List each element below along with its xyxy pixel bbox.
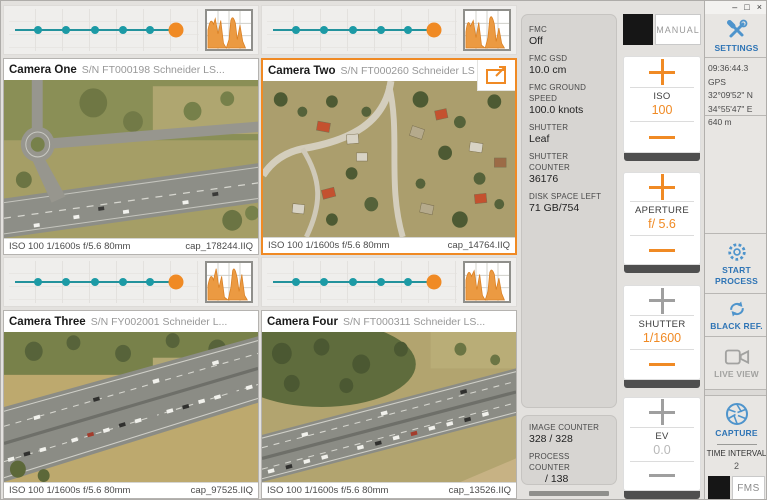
- gps-latitude: 32°09'52" N: [708, 89, 765, 103]
- black-ref-icon: [727, 299, 747, 319]
- camera-four-histogram-thumbnail[interactable]: [463, 261, 511, 303]
- slider-dot: [349, 26, 357, 34]
- camera-two-exposure-slider[interactable]: [267, 9, 457, 51]
- shutter-decrease-button[interactable]: [624, 350, 700, 379]
- slider-dot: [292, 278, 300, 286]
- camera-three-exposure-slider-panel: [3, 257, 259, 307]
- minus-icon: [649, 471, 675, 481]
- capture-button[interactable]: CAPTURE: [705, 396, 767, 444]
- aperture-control-card: APERTURE f/ 5.6: [623, 172, 701, 265]
- close-button[interactable]: ×: [757, 3, 762, 12]
- camera-four-status-bar: ISO 100 1/1600s f/5.6 80mm cap_13526.IIQ: [262, 482, 516, 498]
- camera-three-histogram-thumbnail[interactable]: [205, 261, 253, 303]
- slider-dot: [320, 26, 328, 34]
- camera-three-frame[interactable]: Camera Three S/N FY002001 Schneider L...: [3, 310, 259, 499]
- camera-one-exposure-slider-panel: [3, 5, 259, 55]
- flight-info-panel: FMC Off FMC GSD 10.0 cm FMC GROUND SPEED…: [521, 14, 617, 408]
- camera-four-header: Camera Four S/N FT000311 Schneider LS...: [262, 311, 516, 332]
- expand-icon: [485, 64, 509, 86]
- camera-four-image[interactable]: [262, 332, 516, 482]
- shutter-value: 1/1600: [624, 331, 700, 345]
- capture-icon: [725, 402, 749, 426]
- process-counter-value: / 138: [529, 473, 609, 486]
- iso-decrease-button[interactable]: [624, 122, 700, 152]
- camera-settings-text: ISO 100 1/1600s f/5.6 80mm: [9, 485, 130, 496]
- exposure-mode-indicator[interactable]: [623, 14, 653, 45]
- slider-dot: [404, 26, 412, 34]
- card-shadow: [624, 491, 700, 499]
- exposure-control-column: MANUAL ISO 100 APERTURE f/ 5.6 SHUTTER 1…: [620, 1, 704, 500]
- divider: [717, 444, 757, 445]
- camera-two-status-bar: ISO 100 1/1600s f/5.6 80mm cap_14764.IIQ: [263, 237, 515, 253]
- camera-name: Camera Two: [268, 65, 336, 77]
- histogram-icon: [207, 11, 251, 49]
- disk-space-value: 71 GB/754: [529, 202, 609, 215]
- slider-dot: [34, 26, 42, 34]
- shutter-type-label: SHUTTER: [529, 122, 609, 133]
- ix-capture-window: Camera One S/N FT000198 Schneider LS...: [0, 0, 767, 500]
- aperture-value: f/ 5.6: [624, 217, 700, 231]
- histogram-icon: [465, 263, 509, 301]
- time-interval-label: TIME INTERVAL: [705, 449, 767, 458]
- settings-icon: [725, 18, 749, 42]
- start-process-label: START PROCESS: [708, 265, 766, 286]
- ev-value: 0.0: [624, 443, 700, 457]
- slider-dot: [404, 278, 412, 286]
- shutter-counter-value: 36176: [529, 173, 609, 186]
- divider: [630, 427, 694, 428]
- camera-one-cell: Camera One S/N FT000198 Schneider LS...: [3, 5, 259, 255]
- divider: [630, 315, 694, 316]
- slider-dot: [119, 278, 127, 286]
- settings-label: SETTINGS: [714, 43, 758, 53]
- shutter-label: SHUTTER: [624, 319, 700, 330]
- camera-name: Camera Three: [9, 316, 86, 328]
- fmc-ground-speed-label: FMC GROUND SPEED: [529, 82, 609, 104]
- window-title-bar: – □ ×: [705, 1, 767, 14]
- slider-dot: [292, 26, 300, 34]
- camera-settings-text: ISO 100 1/1600s f/5.6 80mm: [9, 241, 130, 252]
- camera-two-image[interactable]: [263, 81, 515, 237]
- slider-dot: [146, 26, 154, 34]
- aperture-label: APERTURE: [624, 205, 700, 216]
- camera-one-exposure-slider[interactable]: [9, 9, 199, 51]
- image-counter-label: IMAGE COUNTER: [529, 422, 609, 433]
- side-gap: [705, 389, 767, 396]
- exposure-mode-row: MANUAL: [623, 14, 701, 45]
- camera-four-cell: Camera Four S/N FT000311 Schneider LS...: [261, 257, 517, 499]
- slider-dot: [119, 26, 127, 34]
- card-shadow: [624, 153, 700, 161]
- minus-icon: [649, 245, 675, 255]
- plus-icon: [649, 174, 675, 200]
- live-view-icon: [724, 347, 750, 367]
- counters-panel: IMAGE COUNTER 328 / 328 PROCESS COUNTER …: [521, 415, 617, 485]
- camera-three-header: Camera Three S/N FY002001 Schneider L...: [4, 311, 258, 332]
- plus-icon: [649, 59, 675, 85]
- aperture-decrease-button[interactable]: [624, 236, 700, 264]
- camera-settings-text: ISO 100 1/1600s f/5.6 80mm: [268, 240, 389, 251]
- fms-indicator[interactable]: [708, 476, 730, 500]
- iso-control-card: ISO 100: [623, 56, 701, 153]
- disk-space-label: DISK SPACE LEFT: [529, 191, 609, 202]
- slider-dot: [62, 26, 70, 34]
- fmc-ground-speed-value: 100.0 knots: [529, 104, 609, 117]
- flight-info-column: FMC Off FMC GSD 10.0 cm FMC GROUND SPEED…: [521, 1, 617, 500]
- slider-handle[interactable]: [169, 275, 184, 290]
- ev-label: EV: [624, 431, 700, 442]
- camera-two-frame[interactable]: Camera Two S/N FT000260 Schneider LS: [261, 58, 517, 255]
- fmc-gsd-value: 10.0 cm: [529, 64, 609, 77]
- camera-serial: S/N FT000311 Schneider LS...: [343, 316, 485, 328]
- plus-icon: [649, 399, 675, 425]
- shutter-type-value: Leaf: [529, 133, 609, 146]
- camera-four-frame[interactable]: Camera Four S/N FT000311 Schneider LS...: [261, 310, 517, 499]
- black-ref-button[interactable]: BLACK REF.: [705, 294, 767, 337]
- histogram-icon: [207, 263, 251, 301]
- side-spacer: [705, 116, 767, 234]
- camera-two-cell: Camera Two S/N FT000260 Schneider LS: [261, 5, 517, 255]
- slider-dot: [62, 278, 70, 286]
- histogram-icon: [465, 11, 509, 49]
- manual-mode-button[interactable]: MANUAL: [655, 14, 701, 45]
- fms-button[interactable]: FMS: [732, 476, 765, 500]
- gps-longitude: 34°55'47" E: [708, 103, 765, 117]
- side-toolbar-column: – □ × SETTINGS 09:36:44.3 GPS 32°09'52" …: [704, 1, 767, 500]
- camera-name: Camera One: [9, 64, 77, 76]
- camera-serial: S/N FY002001 Schneider L...: [91, 316, 228, 328]
- gps-time: 09:36:44.3 GPS: [708, 62, 765, 89]
- shutter-control-card: SHUTTER 1/1600: [623, 285, 701, 380]
- camera-four-exposure-slider[interactable]: [267, 261, 457, 303]
- slider-handle[interactable]: [427, 23, 442, 38]
- gps-info-panel: 09:36:44.3 GPS 32°09'52" N 34°55'47" E 6…: [705, 58, 767, 116]
- minus-icon: [649, 360, 675, 370]
- camera-three-status-bar: ISO 100 1/1600s f/5.6 80mm cap_97525.IIQ: [4, 482, 258, 498]
- time-interval-value[interactable]: 2: [705, 461, 767, 471]
- slider-dot: [146, 278, 154, 286]
- slider-handle[interactable]: [427, 275, 442, 290]
- start-process-button[interactable]: START PROCESS: [705, 234, 767, 294]
- shutter-increase-button[interactable]: [624, 286, 700, 315]
- camera-three-exposure-slider[interactable]: [9, 261, 199, 303]
- card-shadow: [624, 380, 700, 388]
- iso-label: ISO: [624, 91, 700, 102]
- camera-two-exposure-slider-panel: [261, 5, 517, 55]
- camera-name: Camera Four: [267, 316, 338, 328]
- live-view-label: LIVE VIEW: [708, 369, 766, 380]
- slider-dot: [349, 278, 357, 286]
- camera-three-cell: Camera Three S/N FY002001 Schneider L...: [3, 257, 259, 499]
- slider-handle[interactable]: [169, 23, 184, 38]
- camera-filename: cap_14764.IIQ: [448, 240, 510, 251]
- camera-settings-text: ISO 100 1/1600s f/5.6 80mm: [267, 485, 388, 496]
- divider: [630, 87, 694, 88]
- slider-dot: [377, 26, 385, 34]
- camera-three-image[interactable]: [4, 332, 258, 482]
- expand-camera-button[interactable]: [477, 60, 515, 91]
- shutter-counter-label: SHUTTER COUNTER: [529, 151, 609, 173]
- camera-one-image[interactable]: [4, 80, 258, 238]
- camera-one-frame[interactable]: Camera One S/N FT000198 Schneider LS...: [3, 58, 259, 255]
- slider-dot: [91, 278, 99, 286]
- black-ref-label: BLACK REF.: [708, 321, 766, 332]
- maximize-button[interactable]: □: [744, 3, 749, 12]
- fmc-value: Off: [529, 35, 609, 48]
- process-progress-bar: [529, 491, 609, 496]
- camera-serial: S/N FT000198 Schneider LS...: [82, 64, 225, 76]
- slider-dot: [320, 278, 328, 286]
- minimize-button[interactable]: –: [732, 3, 737, 12]
- plus-icon: [649, 288, 675, 314]
- camera-filename: cap_178244.IIQ: [185, 241, 253, 252]
- minus-icon: [649, 132, 675, 142]
- image-counter-value: 328 / 328: [529, 433, 609, 446]
- iso-value: 100: [624, 103, 700, 117]
- slider-dot: [377, 278, 385, 286]
- slider-dot: [91, 26, 99, 34]
- iso-increase-button[interactable]: [624, 57, 700, 87]
- aperture-increase-button[interactable]: [624, 173, 700, 201]
- settings-button[interactable]: SETTINGS: [705, 14, 767, 58]
- start-process-icon: [726, 241, 748, 263]
- ev-increase-button[interactable]: [624, 398, 700, 427]
- capture-label: CAPTURE: [708, 428, 766, 439]
- camera-one-histogram-thumbnail[interactable]: [205, 9, 253, 51]
- camera-serial: S/N FT000260 Schneider LS: [341, 65, 475, 77]
- slider-dot: [34, 278, 42, 286]
- camera-two-histogram-thumbnail[interactable]: [463, 9, 511, 51]
- camera-filename: cap_13526.IIQ: [449, 485, 511, 496]
- fmc-gsd-label: FMC GSD: [529, 53, 609, 64]
- ev-decrease-button[interactable]: [624, 462, 700, 491]
- process-counter-label: PROCESS COUNTER: [529, 451, 609, 473]
- fms-row: FMS: [705, 476, 767, 500]
- camera-one-status-bar: ISO 100 1/1600s f/5.6 80mm cap_178244.II…: [4, 238, 258, 254]
- camera-filename: cap_97525.IIQ: [191, 485, 253, 496]
- card-shadow: [624, 265, 700, 273]
- fmc-label: FMC: [529, 24, 609, 35]
- ev-control-card: EV 0.0: [623, 397, 701, 491]
- divider: [630, 201, 694, 202]
- live-view-button[interactable]: LIVE VIEW: [705, 337, 767, 389]
- camera-four-exposure-slider-panel: [261, 257, 517, 307]
- camera-one-header: Camera One S/N FT000198 Schneider LS...: [4, 59, 258, 80]
